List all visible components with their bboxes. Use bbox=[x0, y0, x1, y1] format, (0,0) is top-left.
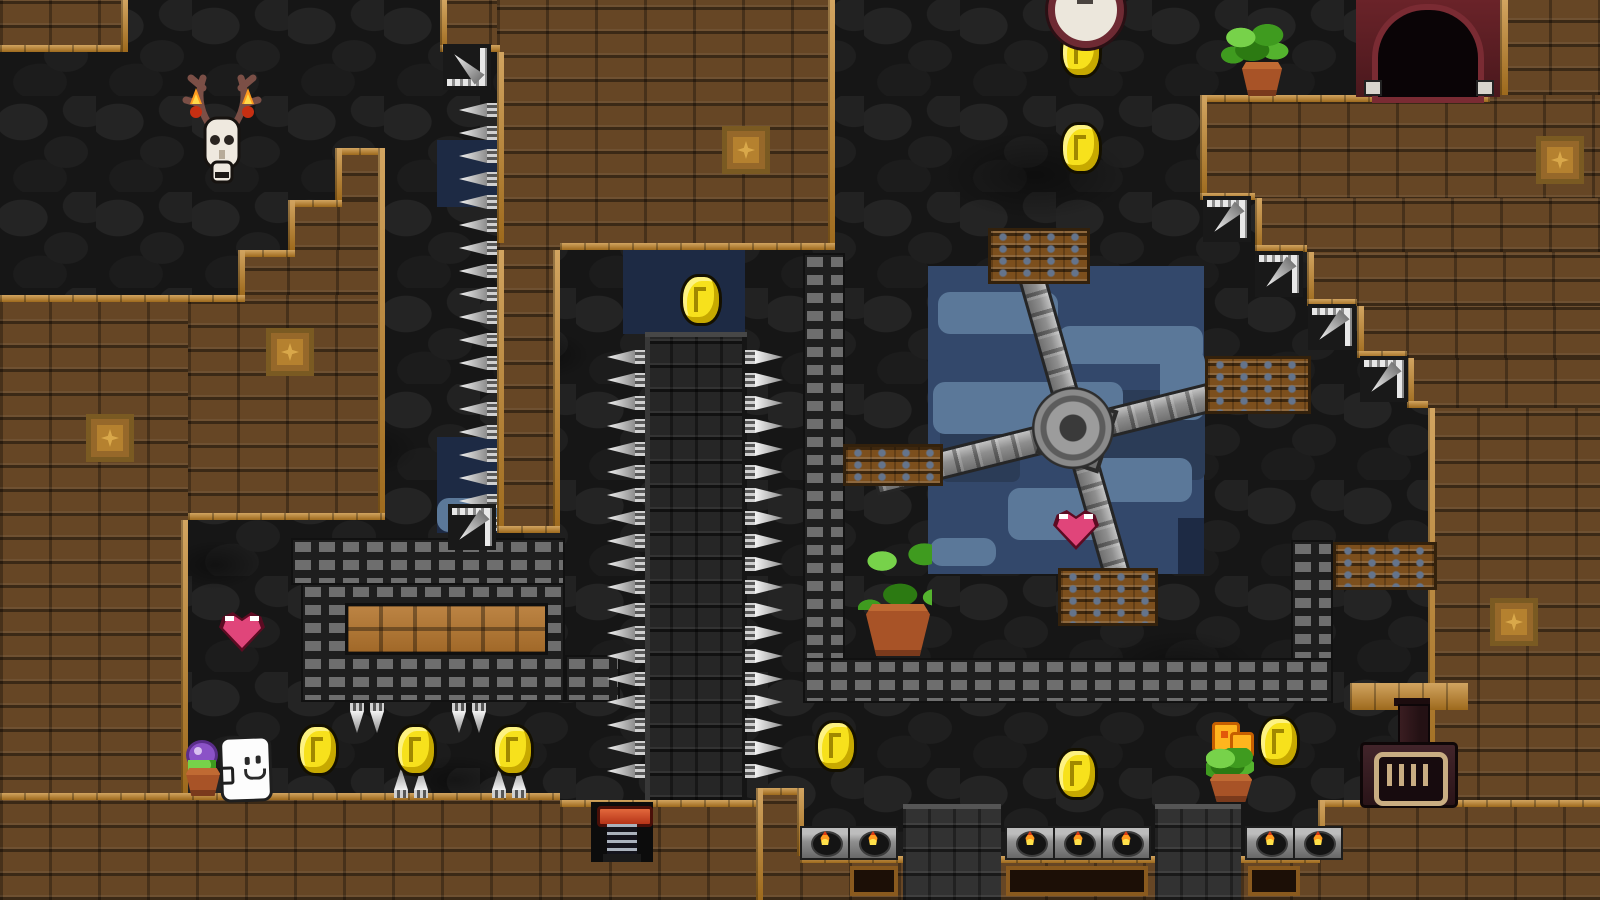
spike-base bbox=[745, 626, 755, 640]
spike-hazard bbox=[745, 741, 783, 755]
brick-block bbox=[497, 0, 835, 250]
spike-tip bbox=[755, 488, 783, 502]
spike-base bbox=[487, 103, 497, 117]
brick-block bbox=[1255, 198, 1600, 252]
spike-base bbox=[745, 442, 755, 456]
drill-part bbox=[480, 48, 487, 86]
plant-foliage bbox=[846, 514, 932, 610]
fire-trap bbox=[1053, 826, 1103, 860]
spike-tip bbox=[607, 419, 635, 433]
spike-hazard bbox=[459, 310, 497, 324]
spike-tip bbox=[755, 649, 783, 663]
spike-tip bbox=[755, 718, 783, 732]
wooden-crate bbox=[1333, 542, 1437, 590]
spike-hazard bbox=[350, 703, 364, 733]
spike-hazard bbox=[745, 511, 783, 525]
fire-trap bbox=[1245, 826, 1295, 860]
spike-tip bbox=[607, 350, 635, 364]
drill-part bbox=[485, 508, 492, 546]
wall-decal bbox=[86, 414, 134, 462]
spike-tip bbox=[459, 126, 487, 140]
brick-edge bbox=[560, 800, 760, 807]
spike-base bbox=[745, 373, 755, 387]
spike-tip bbox=[607, 465, 635, 479]
drill-corner-block bbox=[443, 44, 491, 90]
spike-tip bbox=[607, 603, 635, 617]
spike-tip bbox=[459, 287, 487, 301]
brick-edge bbox=[497, 250, 504, 533]
coin-mark bbox=[694, 287, 706, 312]
wall-decal bbox=[1490, 598, 1538, 646]
drill-corner-block bbox=[1360, 356, 1408, 402]
spike-hazard bbox=[472, 703, 486, 733]
spike-base bbox=[635, 695, 645, 709]
spike-base bbox=[745, 603, 755, 617]
spike-hazard bbox=[607, 718, 645, 732]
brick-edge bbox=[497, 52, 504, 243]
spring-coils bbox=[607, 824, 637, 856]
spike-hazard bbox=[607, 626, 645, 640]
spike-hazard bbox=[459, 126, 497, 140]
spike-tip bbox=[607, 488, 635, 502]
clock-face bbox=[1048, 0, 1124, 48]
brick-edge bbox=[0, 45, 128, 52]
spike-tip bbox=[755, 419, 783, 433]
spike-hazard bbox=[745, 557, 783, 571]
brick-edge bbox=[188, 295, 245, 302]
spike-base bbox=[745, 419, 755, 433]
wall-decal bbox=[722, 126, 770, 174]
spike-base bbox=[635, 557, 645, 571]
spike-tip bbox=[607, 672, 635, 686]
potted-purple-flower bbox=[186, 740, 218, 770]
spike-tip bbox=[755, 764, 783, 778]
spike-base bbox=[745, 695, 755, 709]
coin-pickup[interactable] bbox=[297, 724, 339, 776]
spike-hazard bbox=[459, 264, 497, 278]
spike-hazard bbox=[459, 471, 497, 485]
spike-hazard bbox=[745, 695, 783, 709]
spike-base bbox=[745, 396, 755, 410]
spike-tip bbox=[607, 442, 635, 456]
potted-plant-large bbox=[846, 514, 932, 610]
spike-tip bbox=[459, 149, 487, 163]
spike-base bbox=[487, 264, 497, 278]
ghost-arm bbox=[220, 766, 235, 784]
windmill-hub bbox=[1032, 387, 1114, 469]
brick-maze-inset bbox=[345, 603, 548, 655]
spike-base bbox=[487, 333, 497, 347]
doorway-arch bbox=[1378, 10, 1478, 97]
spike-base bbox=[635, 672, 645, 686]
spike-hazard bbox=[452, 703, 466, 733]
spike-base bbox=[472, 703, 486, 711]
spike-tip bbox=[755, 580, 783, 594]
drill-corner-block bbox=[1203, 196, 1251, 242]
spike-base bbox=[487, 149, 497, 163]
brick-edge bbox=[828, 0, 835, 250]
heart-glint bbox=[1084, 514, 1093, 520]
spike-tip bbox=[459, 379, 487, 393]
metal-rail bbox=[803, 253, 845, 703]
spike-tip bbox=[607, 649, 635, 663]
spike-base bbox=[635, 488, 645, 502]
spike-hazard bbox=[745, 718, 783, 732]
spike-hazard bbox=[607, 396, 645, 410]
game-viewport[interactable] bbox=[0, 0, 1600, 900]
spike-hazard bbox=[459, 218, 497, 232]
spike-hazard bbox=[745, 488, 783, 502]
spike-base bbox=[635, 442, 645, 456]
spike-base bbox=[452, 703, 466, 711]
spike-base bbox=[394, 790, 408, 798]
spike-tip bbox=[459, 218, 487, 232]
coin-pickup[interactable] bbox=[1258, 716, 1300, 768]
spike-hazard bbox=[745, 764, 783, 778]
floor-inset bbox=[1248, 866, 1300, 896]
spring-base bbox=[603, 854, 641, 862]
brick-edge bbox=[378, 148, 385, 520]
potted-fern bbox=[1218, 20, 1294, 70]
spike-tip bbox=[472, 711, 486, 733]
heart-glint bbox=[250, 616, 259, 622]
fern-pot bbox=[1242, 62, 1282, 96]
furnace-bar-2 bbox=[1399, 764, 1404, 786]
spike-base bbox=[635, 350, 645, 364]
spike-tip bbox=[755, 373, 783, 387]
exit-doorway[interactable] bbox=[1356, 0, 1500, 97]
spike-tip bbox=[459, 425, 487, 439]
metal-rail bbox=[803, 658, 1333, 703]
spike-hazard bbox=[745, 649, 783, 663]
spike-base bbox=[635, 373, 645, 387]
spike-tip bbox=[755, 741, 783, 755]
spike-base bbox=[487, 379, 497, 393]
fire-trap bbox=[848, 826, 898, 860]
spike-tip bbox=[459, 195, 487, 209]
wooden-crate bbox=[843, 444, 943, 486]
spike-hazard bbox=[745, 534, 783, 548]
coin-mark bbox=[311, 737, 323, 762]
spike-tip bbox=[459, 448, 487, 462]
fire-trap bbox=[1005, 826, 1055, 860]
spike-tip bbox=[459, 310, 487, 324]
spike-tip bbox=[459, 471, 487, 485]
spike-base bbox=[745, 741, 755, 755]
spike-hazard bbox=[607, 511, 645, 525]
heart-glint bbox=[1059, 514, 1068, 520]
fire-trap bbox=[800, 826, 850, 860]
spike-base bbox=[487, 126, 497, 140]
spike-tip bbox=[607, 764, 635, 778]
spike-hazard bbox=[607, 764, 645, 778]
wooden-crate bbox=[1058, 568, 1158, 626]
spike-hazard bbox=[459, 333, 497, 347]
spike-base bbox=[487, 195, 497, 209]
spike-base bbox=[635, 626, 645, 640]
spike-hazard bbox=[459, 379, 497, 393]
spike-hazard bbox=[370, 703, 384, 733]
coin-pickup[interactable] bbox=[395, 724, 437, 776]
brick-edge bbox=[188, 513, 385, 520]
spike-hazard bbox=[745, 442, 783, 456]
ghost-body bbox=[219, 735, 273, 803]
spike-base bbox=[635, 741, 645, 755]
spike-hazard bbox=[459, 356, 497, 370]
spike-hazard bbox=[607, 534, 645, 548]
coin-mark bbox=[1272, 729, 1284, 754]
ghost-character[interactable] bbox=[220, 736, 272, 802]
heart-pickup[interactable] bbox=[219, 612, 265, 652]
spike-base bbox=[487, 172, 497, 186]
drill-part bbox=[1292, 255, 1299, 293]
brick-edge bbox=[121, 0, 128, 52]
cloud-patch bbox=[930, 538, 996, 566]
brick-edge bbox=[0, 295, 188, 302]
spike-base bbox=[487, 218, 497, 232]
spike-base bbox=[745, 764, 755, 778]
furnace-bar-1 bbox=[1387, 764, 1392, 786]
brick-edge bbox=[335, 148, 342, 200]
furnace-door bbox=[1374, 752, 1448, 806]
spike-hazard bbox=[459, 195, 497, 209]
furnace-bar-4 bbox=[1423, 764, 1428, 786]
brick-edge bbox=[238, 250, 245, 295]
fire-trap bbox=[1101, 826, 1151, 860]
spike-tip bbox=[607, 626, 635, 640]
stone-pillar bbox=[903, 804, 1001, 900]
spike-tip bbox=[350, 711, 364, 733]
spike-hazard bbox=[745, 465, 783, 479]
spike-hazard bbox=[607, 557, 645, 571]
drill-part bbox=[1345, 308, 1352, 346]
brick-edge bbox=[1307, 252, 1314, 306]
brick-edge bbox=[1200, 95, 1207, 200]
spike-hazard bbox=[745, 373, 783, 387]
spike-tip bbox=[459, 241, 487, 255]
spike-base bbox=[487, 425, 497, 439]
spike-base bbox=[635, 396, 645, 410]
spike-hazard bbox=[745, 580, 783, 594]
wall-clock bbox=[1048, 0, 1124, 48]
spike-tip bbox=[607, 741, 635, 755]
drill-corner-block bbox=[1308, 304, 1356, 350]
spike-hazard bbox=[745, 396, 783, 410]
coin-pickup[interactable] bbox=[815, 720, 857, 772]
spike-base bbox=[745, 649, 755, 663]
spike-hazard bbox=[607, 373, 645, 387]
spike-hazard bbox=[745, 603, 783, 617]
brick-edge bbox=[560, 243, 835, 250]
spike-base bbox=[635, 603, 645, 617]
spike-hazard bbox=[607, 465, 645, 479]
purple-bloom-center bbox=[194, 747, 202, 755]
spike-hazard bbox=[459, 103, 497, 117]
spike-base bbox=[350, 703, 364, 711]
spike-tip bbox=[607, 557, 635, 571]
brick-edge bbox=[553, 250, 560, 533]
spike-tip bbox=[755, 511, 783, 525]
spike-hazard bbox=[459, 149, 497, 163]
spike-base bbox=[635, 534, 645, 548]
purple-pot bbox=[186, 768, 220, 796]
spike-base bbox=[492, 790, 506, 798]
metal-rail bbox=[1291, 540, 1333, 660]
doorway-peg-right bbox=[1476, 80, 1494, 96]
coin-mark bbox=[409, 737, 421, 762]
water-patch bbox=[1178, 518, 1204, 574]
spike-base bbox=[635, 718, 645, 732]
spike-tip bbox=[607, 718, 635, 732]
spike-hazard bbox=[745, 672, 783, 686]
spike-hazard bbox=[607, 672, 645, 686]
brick-block bbox=[497, 250, 560, 533]
furnace-bar-3 bbox=[1411, 764, 1416, 786]
spike-tip bbox=[755, 557, 783, 571]
spike-base bbox=[487, 448, 497, 462]
spike-hazard bbox=[607, 350, 645, 364]
spike-hazard bbox=[745, 626, 783, 640]
brick-block bbox=[0, 793, 560, 900]
drill-corner-block bbox=[1255, 251, 1303, 297]
spring-piston[interactable] bbox=[591, 802, 653, 862]
brick-edge bbox=[1255, 198, 1262, 252]
coin-pickup[interactable] bbox=[1060, 122, 1102, 174]
ghost-eye-left bbox=[245, 757, 250, 765]
spike-hazard bbox=[745, 419, 783, 433]
brick-edge bbox=[0, 793, 560, 800]
brick-edge bbox=[1407, 401, 1428, 408]
fire-trap bbox=[1293, 826, 1343, 860]
spike-hazard bbox=[607, 741, 645, 755]
ghost-eye-right bbox=[256, 755, 261, 763]
brick-edge bbox=[288, 200, 295, 250]
spike-hazard bbox=[607, 442, 645, 456]
flower-center-1 bbox=[1221, 731, 1228, 738]
brick-edge bbox=[1500, 0, 1508, 95]
spike-base bbox=[635, 649, 645, 663]
drill-corner-block bbox=[448, 504, 496, 550]
spike-hazard bbox=[459, 241, 497, 255]
flower-leaves bbox=[1206, 748, 1254, 778]
spike-base bbox=[487, 356, 497, 370]
spike-tip bbox=[607, 373, 635, 387]
spike-hazard bbox=[459, 425, 497, 439]
spike-tip bbox=[755, 626, 783, 640]
coin-mark bbox=[829, 733, 841, 758]
spike-tip bbox=[607, 695, 635, 709]
spike-base bbox=[745, 580, 755, 594]
spike-tip bbox=[459, 172, 487, 186]
spike-tip bbox=[607, 396, 635, 410]
spike-base bbox=[370, 703, 384, 711]
brick-edge bbox=[238, 250, 295, 257]
ghost-mouth bbox=[244, 768, 266, 780]
brick-edge bbox=[288, 200, 342, 207]
spike-base bbox=[745, 511, 755, 525]
spike-tip bbox=[755, 396, 783, 410]
heart-glint bbox=[225, 616, 234, 622]
spike-tip bbox=[459, 264, 487, 278]
spike-base bbox=[745, 718, 755, 732]
brick-edge bbox=[756, 788, 763, 900]
brick-block bbox=[560, 800, 760, 900]
spike-hazard bbox=[459, 287, 497, 301]
spike-tip bbox=[607, 534, 635, 548]
coin-mark bbox=[1074, 135, 1086, 160]
spike-hazard bbox=[607, 419, 645, 433]
brick-block bbox=[1318, 800, 1600, 900]
drill-part bbox=[1397, 360, 1404, 398]
spike-base bbox=[745, 534, 755, 548]
spike-base bbox=[487, 287, 497, 301]
spike-tip bbox=[459, 103, 487, 117]
spike-tip bbox=[755, 534, 783, 548]
brick-block bbox=[288, 200, 385, 250]
coin-pickup[interactable] bbox=[1056, 748, 1098, 800]
brick-block bbox=[1407, 358, 1600, 408]
spike-base bbox=[635, 764, 645, 778]
brick-edge bbox=[497, 526, 560, 533]
brick-block bbox=[1307, 252, 1600, 306]
stone-pillar bbox=[1155, 804, 1241, 900]
spike-base bbox=[745, 672, 755, 686]
floor-inset bbox=[1006, 866, 1148, 896]
spike-hazard bbox=[607, 488, 645, 502]
spike-tip bbox=[755, 465, 783, 479]
spike-base bbox=[635, 580, 645, 594]
wooden-crate bbox=[988, 228, 1090, 284]
spike-hazard bbox=[745, 350, 783, 364]
spike-hazard bbox=[459, 402, 497, 416]
wall-decal bbox=[1536, 136, 1584, 184]
spike-hazard bbox=[607, 580, 645, 594]
floor-inset bbox=[850, 866, 898, 896]
spike-base bbox=[487, 241, 497, 255]
brick-block bbox=[1500, 0, 1600, 95]
coin-pickup[interactable] bbox=[680, 274, 722, 326]
spike-tip bbox=[755, 603, 783, 617]
spike-base bbox=[635, 511, 645, 525]
spike-base bbox=[487, 402, 497, 416]
spike-base bbox=[512, 790, 526, 798]
spike-base bbox=[745, 350, 755, 364]
spike-hazard bbox=[459, 172, 497, 186]
spike-hazard bbox=[607, 603, 645, 617]
metal-rail bbox=[291, 538, 565, 585]
spike-base bbox=[635, 419, 645, 433]
spike-tip bbox=[755, 442, 783, 456]
spike-tip bbox=[459, 402, 487, 416]
spike-tip bbox=[452, 711, 466, 733]
spike-hazard bbox=[607, 649, 645, 663]
deer-skull-trophy bbox=[176, 62, 268, 206]
spike-base bbox=[487, 310, 497, 324]
coin-mark bbox=[1070, 761, 1082, 786]
spike-base bbox=[414, 790, 428, 798]
spike-tip bbox=[459, 356, 487, 370]
wall-decal bbox=[266, 328, 314, 376]
spike-tip bbox=[755, 350, 783, 364]
drill-part bbox=[1240, 200, 1247, 238]
flower-pot bbox=[1210, 774, 1252, 802]
spike-tip bbox=[607, 580, 635, 594]
spike-hazard bbox=[459, 448, 497, 462]
coin-pickup[interactable] bbox=[492, 724, 534, 776]
doorway-peg-left bbox=[1364, 80, 1382, 96]
spike-tip bbox=[607, 511, 635, 525]
spike-base bbox=[745, 557, 755, 571]
